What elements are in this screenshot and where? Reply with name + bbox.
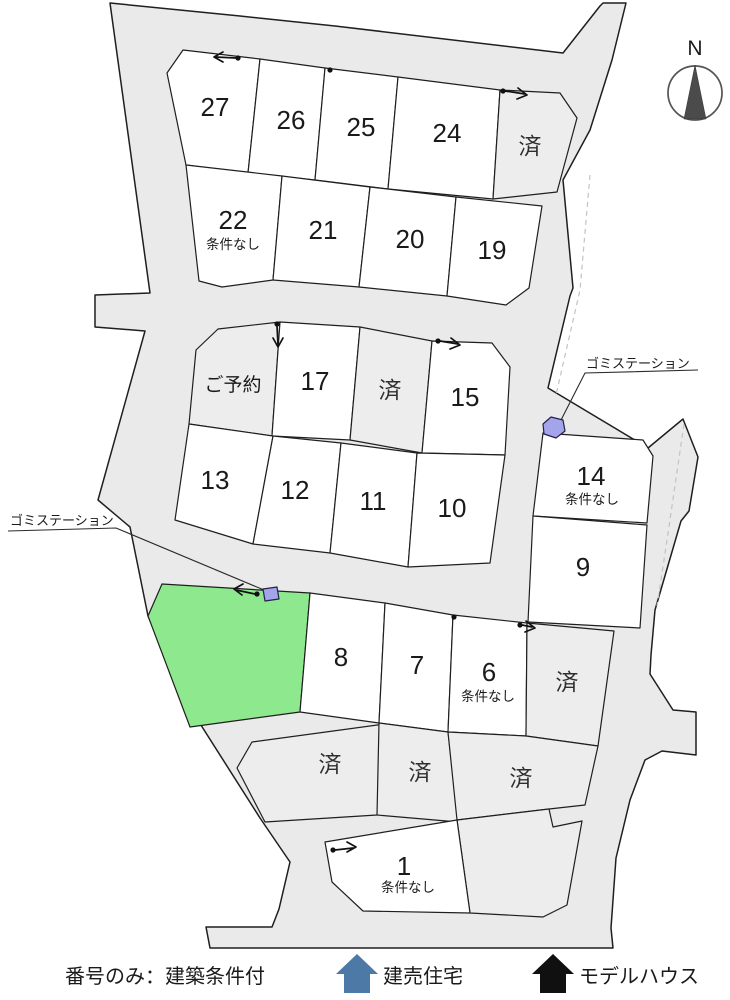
lot-label: 13	[201, 465, 230, 495]
legend-blue-house-label: 建売住宅	[383, 965, 463, 988]
compass-label: N	[687, 37, 702, 60]
lot-label: 21	[309, 215, 338, 245]
lot-label: 17	[301, 366, 330, 396]
lot-label: 12	[281, 475, 310, 505]
subdivision-map-svg: 27 26 25 24 済 22 条件なし 21 20 19 ご予約 17 済 …	[0, 0, 730, 1000]
lot-label: 14	[577, 461, 606, 491]
lot-label: 9	[576, 552, 590, 582]
lot-label: ご予約	[204, 374, 261, 396]
lot-label: 11	[360, 486, 387, 516]
lot-label: 済	[519, 133, 542, 159]
lot-label: 6	[482, 657, 496, 687]
site-map: 27 26 25 24 済 22 条件なし 21 20 19 ご予約 17 済 …	[0, 0, 730, 1000]
lot-sublabel: 条件なし	[206, 236, 260, 252]
lot-label: 26	[277, 105, 306, 135]
lot-sublabel: 条件なし	[565, 491, 619, 507]
lot-label: 24	[433, 118, 462, 148]
lot-label: 1	[397, 851, 411, 881]
garbage-station-marker	[263, 587, 279, 601]
garbage-station-label: ゴミステーション	[586, 356, 690, 371]
lot-label: 済	[409, 759, 432, 785]
legend-black-house-label: モデルハウス	[579, 965, 699, 988]
lot-label: 済	[510, 765, 533, 791]
lot-label: 10	[438, 493, 467, 523]
lot-label: 27	[201, 92, 230, 122]
lot-gray-bottom	[457, 809, 582, 917]
lot-label: 22	[219, 205, 248, 235]
legend-rule-label: 番号のみ：建築条件付	[65, 965, 265, 988]
lot-label: 19	[478, 235, 507, 265]
lot-label: 8	[334, 642, 348, 672]
garbage-station-label: ゴミステーション	[10, 513, 114, 528]
lot-label: 25	[347, 112, 376, 142]
lot-sublabel: 条件なし	[461, 688, 515, 704]
lot-label: 済	[379, 377, 402, 403]
lot-label: 20	[396, 224, 425, 254]
lot-label: 済	[319, 751, 342, 777]
entrance-dot-icon	[327, 67, 332, 72]
lot-label: 済	[556, 669, 579, 695]
entrance-dot-icon	[451, 614, 456, 619]
lot-label: 7	[410, 650, 424, 680]
lot-sublabel: 条件なし	[381, 879, 435, 895]
lot-label: 15	[451, 382, 480, 412]
